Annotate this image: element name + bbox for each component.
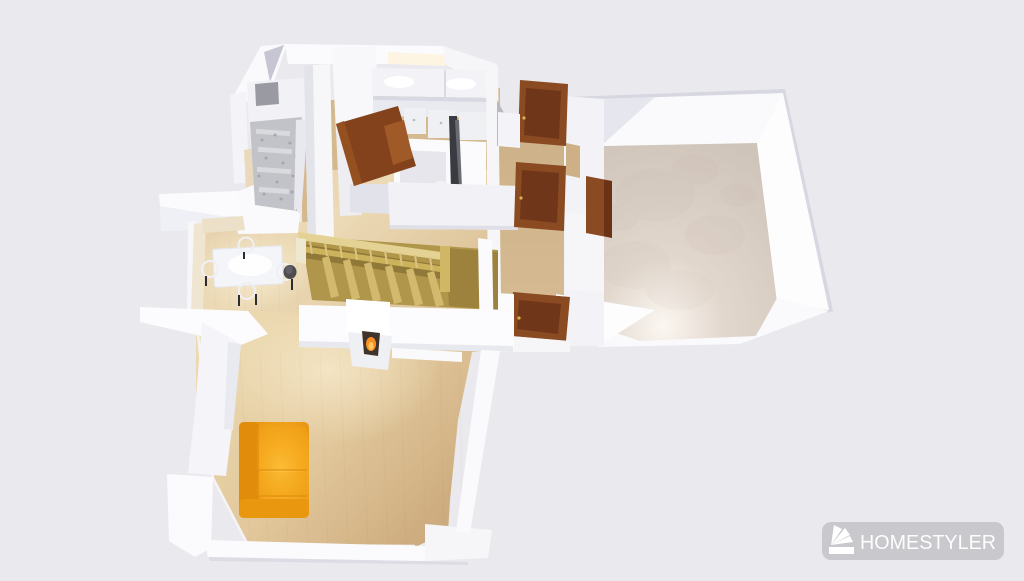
svg-text:HOMESTYLER: HOMESTYLER: [860, 531, 996, 554]
